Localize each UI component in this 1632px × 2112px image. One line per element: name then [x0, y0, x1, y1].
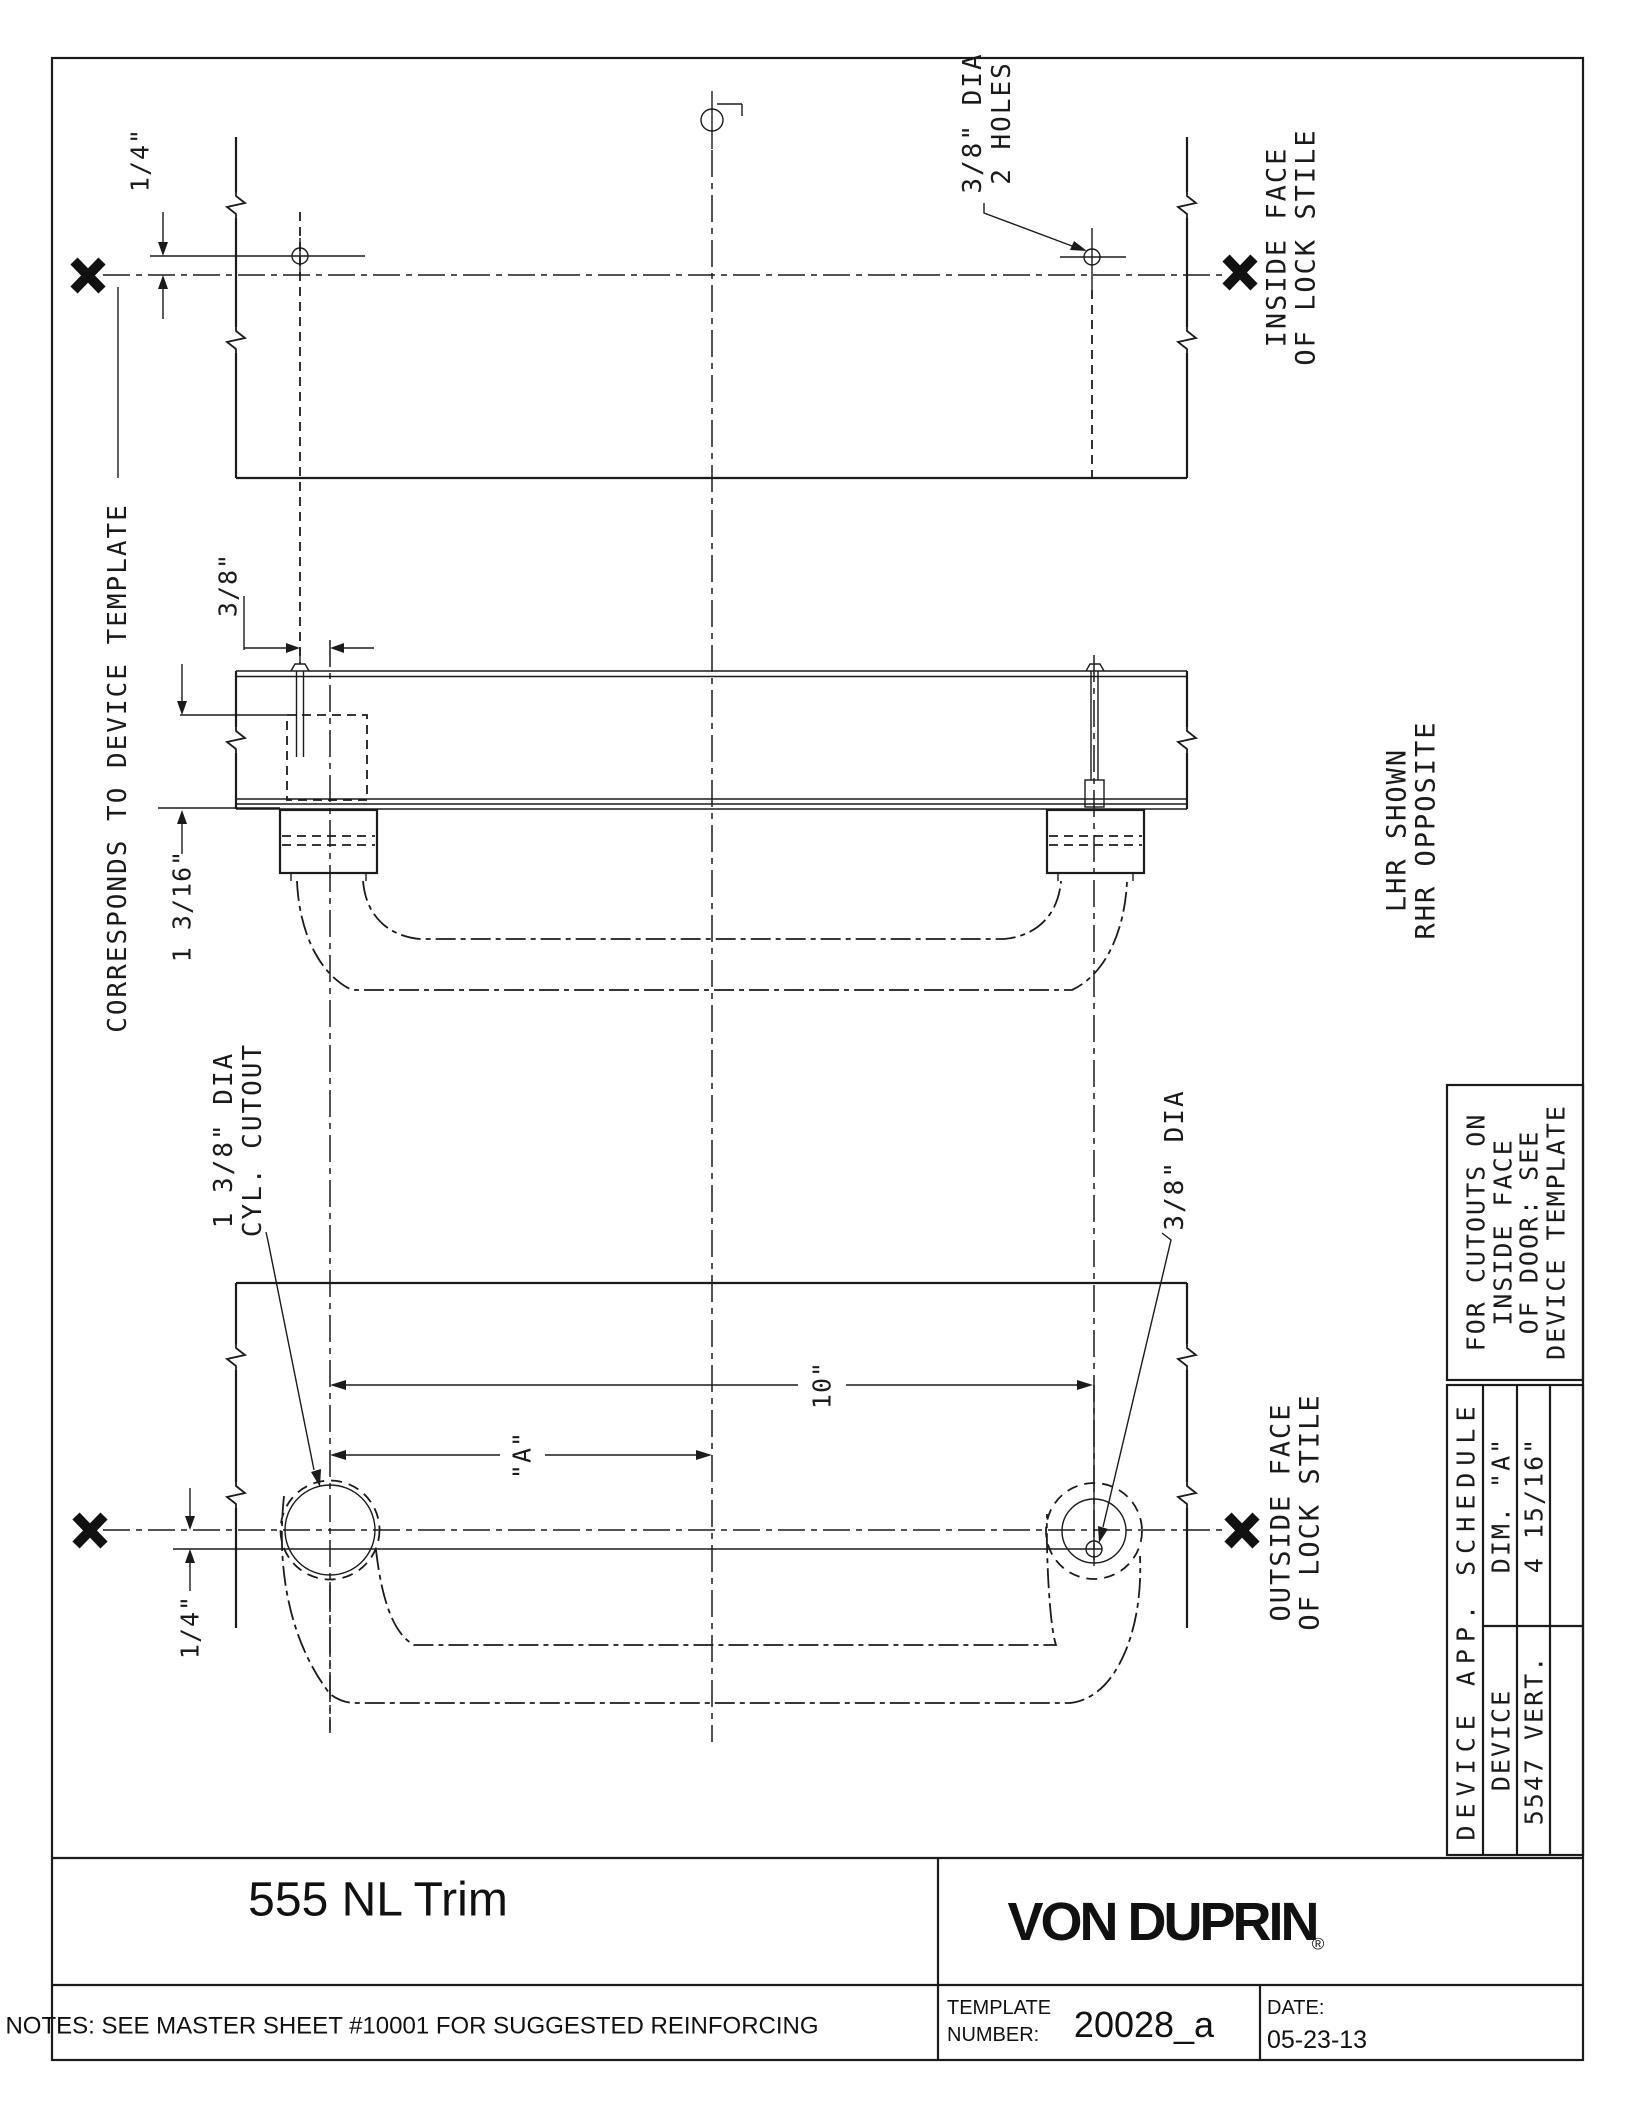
leader-line — [266, 1232, 314, 1470]
title-block: 555 NL Trim VON DUPRIN ® NOTES: SEE MAST… — [5, 1858, 1583, 2060]
dimension-arrows — [286, 643, 344, 653]
leader-line — [1103, 1233, 1171, 1527]
hole-callout: 3/8" DIA — [1098, 1089, 1190, 1543]
corresponds-label: CORRESPONDS TO DEVICE TEMPLATE — [103, 503, 133, 1033]
leader-arrow — [1098, 1526, 1108, 1543]
dim-ten-label: 10" — [808, 1361, 837, 1409]
notes-text: NOTES: SEE MASTER SHEET #10001 FOR SUGGE… — [5, 2013, 818, 2040]
right-mounting-hole — [1060, 228, 1126, 477]
leader-line — [984, 203, 1072, 246]
leader-arrow — [311, 1469, 321, 1487]
corresponds-callout: CORRESPONDS TO DEVICE TEMPLATE — [103, 287, 133, 1033]
cutout-callout: 1 3/8" DIA CYL. CUTOUT — [209, 1043, 321, 1487]
a-dimension: "A" — [330, 1431, 712, 1479]
hole-note-label: 3/8" DIA — [1160, 1089, 1190, 1230]
quarter-inch-dimension-bottom: 1/4" — [176, 1488, 205, 1659]
note-line1: FOR CUTOUTS ON — [1462, 1113, 1491, 1352]
inside-face-label-line1: INSIDE FACE — [1262, 147, 1293, 348]
holes-note-line1: 3/8" DIA — [958, 52, 988, 193]
cutout-note-line1: 1 3/8" DIA — [209, 1052, 239, 1229]
sheet-title: 555 NL Trim — [248, 1874, 508, 1927]
dim-quarter-label: 1/4" — [126, 128, 155, 192]
handle-outer-silhouette — [282, 1496, 1140, 1703]
holes-callout: 3/8" DIA 2 HOLES — [958, 52, 1087, 251]
date-value: 05-23-13 — [1267, 2026, 1367, 2054]
note-line3: OF DOOR: SEE — [1515, 1130, 1544, 1335]
right-post-neck — [1058, 873, 1133, 881]
holes-note-line2: 2 HOLES — [987, 61, 1017, 185]
x-marker-top-left — [74, 261, 102, 290]
brand-registered-mark: ® — [1312, 1935, 1325, 1954]
dimension-lines — [158, 664, 287, 854]
template-label-line2: NUMBER: — [947, 2024, 1039, 2046]
quarter-inch-dimension: 1/4" — [126, 128, 169, 319]
handle-inner-silhouette — [376, 1514, 1056, 1645]
handing-label-line2: RHR OPPOSITE — [1411, 720, 1442, 939]
schedule-col-device: DEVICE — [1487, 1689, 1516, 1791]
dimension-lines — [244, 596, 374, 664]
schedule-table: DEVICE APP. SCHEDULE DIM. "A" 4 15/16" D… — [1447, 1385, 1583, 1855]
one-three-sixteenths-dimension: 1 3/16" — [158, 664, 287, 962]
dim-three-eighths-label: 3/8" — [214, 553, 243, 617]
left-post-base — [280, 810, 377, 873]
schedule-col-dim: DIM. "A" — [1487, 1437, 1516, 1573]
drawing-canvas: 1/4" 3/8" DIA 2 HOLES INSIDE FACE OF LOC… — [0, 0, 1632, 2112]
cutout-note-line2: CYL. CUTOUT — [238, 1043, 268, 1237]
cl-marks — [712, 91, 742, 149]
note-line4: DEVICE TEMPLATE — [1542, 1104, 1571, 1360]
template-drawing-sheet: 1/4" 3/8" DIA 2 HOLES INSIDE FACE OF LOC… — [0, 0, 1632, 2112]
inside-face-view: 1/4" 3/8" DIA 2 HOLES INSIDE FACE OF LOC… — [74, 52, 1322, 663]
schedule-title: DEVICE APP. SCHEDULE — [1452, 1399, 1481, 1840]
left-screw-assembly — [287, 664, 367, 800]
handing-label-line1: LHR SHOWN — [1382, 748, 1413, 912]
left-mounting-hole — [150, 212, 365, 663]
dimension-arrows — [177, 701, 187, 824]
schedule-row-device: 5547 VERT. — [1520, 1655, 1549, 1826]
dim-one-three-sixteenths-label: 1 3/16" — [168, 850, 197, 962]
screw-shaft — [297, 671, 304, 757]
left-base-hidden-lines — [282, 836, 375, 845]
centerlines — [103, 150, 1228, 1742]
dim-quarter-label: 1/4" — [176, 1595, 205, 1659]
outside-face-label-line1: OUTSIDE FACE — [1266, 1402, 1297, 1621]
cutout-note-box: FOR CUTOUTS ON INSIDE FACE OF DOOR: SEE … — [1447, 1085, 1583, 1380]
dimension-arrows — [158, 242, 168, 289]
date-label: DATE: — [1267, 1997, 1324, 2019]
dim-a-label: "A" — [508, 1431, 537, 1479]
right-post-outside — [1046, 1385, 1142, 1579]
right-base-hidden-lines — [1049, 836, 1142, 845]
three-eighths-dimension: 3/8" — [214, 553, 375, 664]
pull-handle-outside — [282, 1496, 1140, 1703]
right-post-base — [1047, 810, 1144, 873]
dimension-arrows — [185, 1516, 195, 1563]
schedule-row-dim: 4 15/16" — [1520, 1437, 1549, 1573]
outside-face-view: 10" "A" 1/4" 1 3/8" DIA CYL. CUTOUT 3/8"… — [76, 1043, 1326, 1730]
note-line2: INSIDE FACE — [1489, 1138, 1518, 1326]
outside-face-label-line2: OF LOCK STILE — [1295, 1393, 1326, 1630]
screw-head — [291, 664, 309, 671]
template-number: 20028_a — [1074, 2004, 1215, 2045]
screw-head — [1086, 664, 1104, 671]
centerline-symbol — [701, 91, 742, 149]
inside-face-label-line2: OF LOCK STILE — [1291, 128, 1322, 365]
brand-logo: VON DUPRIN — [1007, 1892, 1316, 1952]
left-post-neck — [291, 873, 366, 881]
leader-arrow — [1070, 241, 1087, 251]
x-marker-bottom-right — [1228, 1516, 1256, 1545]
template-label-line1: TEMPLATE — [947, 1997, 1051, 2019]
cylinder-housing-hidden — [287, 715, 367, 800]
x-marker-bottom-left — [76, 1516, 104, 1545]
x-marker-top-right — [1226, 258, 1254, 287]
section-view: 3/8" 1 3/16" CORRESPONDS TO DEVICE TEMPL… — [103, 287, 1442, 1033]
drawing-border — [52, 58, 1583, 2060]
